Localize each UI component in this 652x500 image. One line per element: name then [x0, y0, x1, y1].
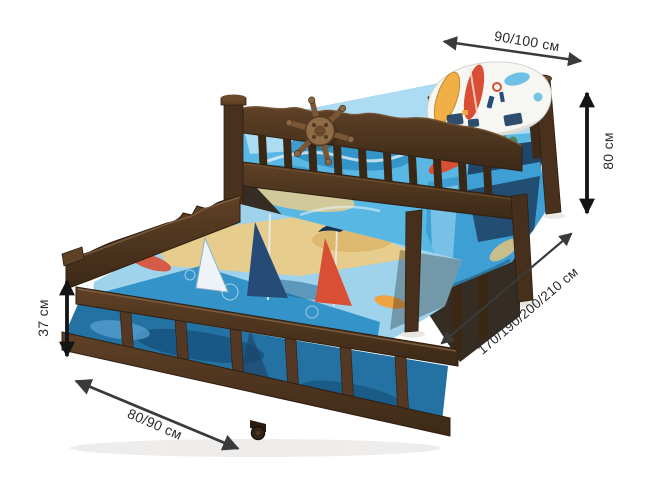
trundle-width-arrow: [76, 381, 238, 449]
trundle-height-label: 37 см: [36, 299, 50, 337]
upper-height-label: 80 см: [601, 132, 615, 170]
dimension-arrows: [0, 0, 652, 500]
product-dimension-image: 90/100 см 80 см 170/190/200/210 см 37 см…: [0, 0, 652, 500]
